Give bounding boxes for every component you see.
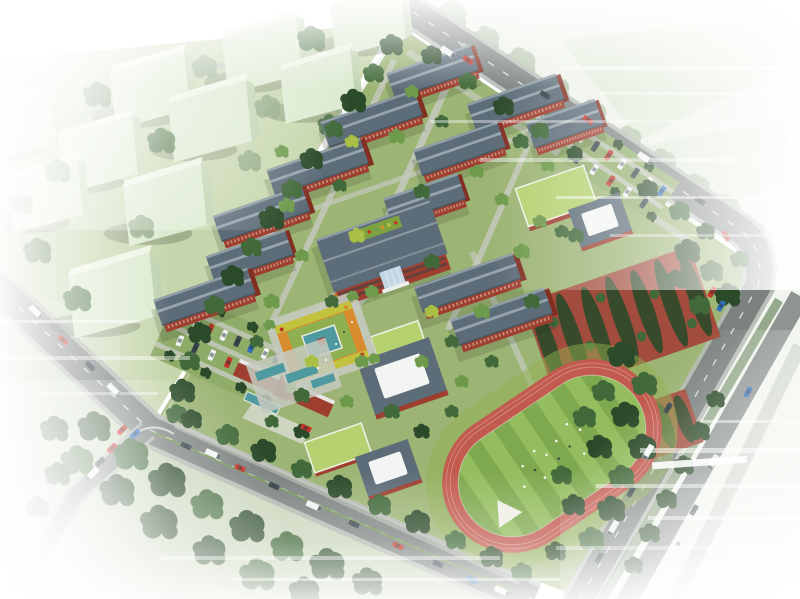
campus-aerial-rendering: Aerial bird's-eye architectural renderin… — [0, 0, 800, 599]
rendering-canvas: Aerial bird's-eye architectural renderin… — [0, 0, 800, 599]
